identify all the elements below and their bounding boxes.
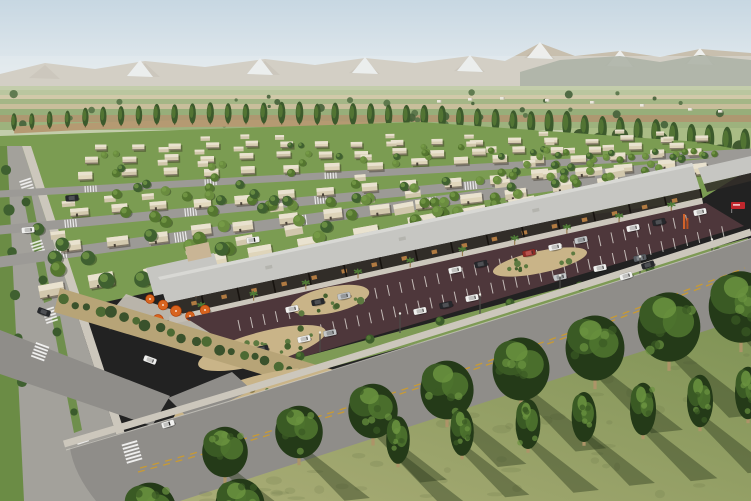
house <box>319 151 334 160</box>
hedge-shrub <box>228 348 235 355</box>
boulevard-tree <box>10 290 20 300</box>
aerial-render-image: Aerial architectural rendering of a dese… <box>0 0 751 501</box>
house <box>169 144 183 152</box>
background-tree <box>116 99 122 105</box>
background-tree <box>274 99 280 105</box>
boulevard-tree <box>1 165 11 175</box>
house <box>316 187 336 199</box>
house <box>315 141 330 149</box>
background-tree <box>653 97 657 101</box>
background-tree <box>268 105 271 108</box>
background-tree <box>523 113 528 118</box>
hedge-shrub <box>252 353 259 360</box>
community-aerial-scene <box>0 0 751 501</box>
median-tree <box>39 276 48 285</box>
house <box>323 207 344 222</box>
hedge-shrub <box>119 312 129 322</box>
house <box>78 171 94 182</box>
background-tree <box>235 98 238 101</box>
house <box>122 157 138 165</box>
hedge-shrub <box>105 306 117 318</box>
house <box>629 143 644 153</box>
hedge-shrub <box>83 303 90 310</box>
background-tree <box>10 90 18 98</box>
house <box>431 139 444 147</box>
hedge-shrub <box>167 329 175 337</box>
hedge-shrub <box>240 351 249 360</box>
field-strip <box>0 104 751 109</box>
house <box>85 157 100 166</box>
background-tree <box>347 97 353 103</box>
house <box>95 145 108 153</box>
boulevard-tree <box>3 204 14 215</box>
background-tree <box>613 110 621 118</box>
background-tree <box>88 107 95 114</box>
background-tree <box>468 89 474 95</box>
background-tree <box>615 91 619 95</box>
background-tree <box>568 108 572 112</box>
house <box>512 146 526 155</box>
field-strip <box>0 95 751 99</box>
hedge-shrub <box>132 317 140 325</box>
car <box>142 355 158 367</box>
median-tree <box>70 408 77 415</box>
background-tree <box>471 102 474 105</box>
house <box>132 144 146 152</box>
house <box>324 163 341 173</box>
house <box>454 157 470 167</box>
median-tree <box>53 328 62 337</box>
hedge-shrub <box>96 307 106 317</box>
orange-monument <box>683 214 685 229</box>
hedge-shrub <box>176 334 185 343</box>
orange-monument <box>686 218 688 229</box>
background-tree <box>679 101 683 105</box>
hedge-shrub <box>260 356 270 366</box>
background-tree <box>267 95 271 99</box>
house <box>430 150 446 159</box>
background-tree <box>415 117 420 122</box>
background-tree <box>661 121 669 129</box>
hedge-shrub <box>72 302 79 309</box>
house <box>276 151 292 159</box>
hedge-shrub <box>201 336 211 346</box>
hedge-shrub <box>139 320 150 331</box>
house <box>508 138 523 146</box>
house <box>586 139 601 146</box>
median-tree <box>22 198 31 207</box>
hedge-shrub <box>192 337 201 346</box>
hedge-shrub <box>156 323 165 332</box>
field-strip <box>0 90 751 95</box>
background-tree <box>520 107 525 112</box>
field-strip <box>0 99 751 104</box>
field-strip <box>0 109 751 115</box>
person <box>195 296 197 300</box>
hedge-shrub <box>58 294 68 304</box>
background-tree <box>565 91 573 99</box>
hedge-shrub <box>274 362 284 372</box>
house <box>241 166 257 176</box>
house <box>695 135 709 143</box>
hedge-shrub <box>214 345 225 356</box>
house <box>351 142 364 150</box>
